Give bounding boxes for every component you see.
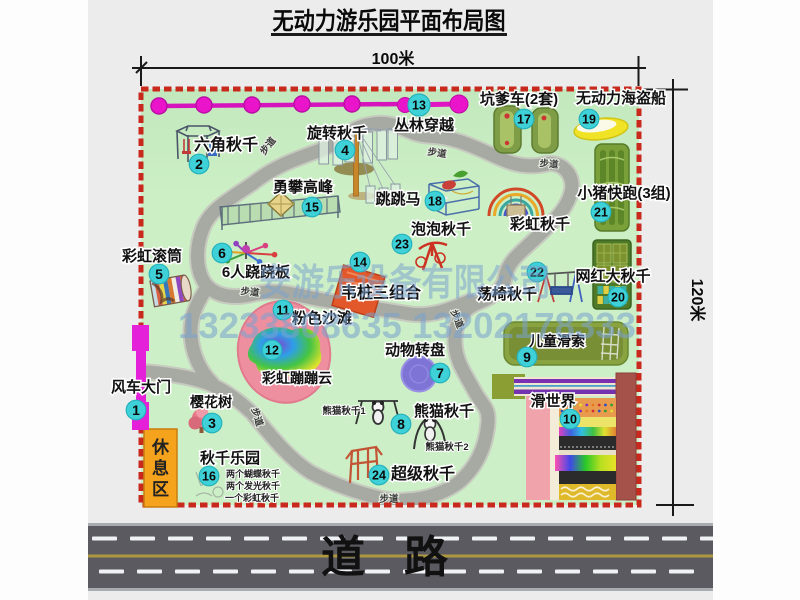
svg-text:10: 10 — [563, 413, 577, 427]
svg-text:24: 24 — [372, 469, 386, 483]
svg-text:坑爹车(2套): 坑爹车(2套) — [480, 90, 558, 108]
svg-text:5: 5 — [155, 266, 163, 282]
svg-text:9: 9 — [523, 349, 531, 365]
svg-text:无动力海盗船: 无动力海盗船 — [575, 89, 666, 107]
svg-text:无动力游乐园平面布局图: 无动力游乐园平面布局图 — [273, 7, 506, 35]
svg-text:100米: 100米 — [372, 49, 416, 68]
svg-text:网红大秋千: 网红大秋千 — [575, 267, 650, 285]
svg-text:樱花树: 樱花树 — [190, 394, 232, 410]
svg-text:熊猫秋千: 熊猫秋千 — [414, 402, 474, 420]
svg-text:两个蝴蝶秋千: 两个蝴蝶秋千 — [226, 468, 280, 479]
svg-text:息: 息 — [152, 458, 169, 478]
svg-text:120米: 120米 — [688, 279, 707, 323]
svg-text:21: 21 — [594, 206, 608, 220]
svg-text:彩虹蹦蹦云: 彩虹蹦蹦云 — [261, 370, 332, 386]
svg-text:4: 4 — [341, 142, 349, 158]
svg-text:18: 18 — [428, 195, 442, 209]
svg-text:步道: 步道 — [539, 157, 559, 171]
svg-text:丛林穿越: 丛林穿越 — [394, 116, 455, 134]
svg-text:20: 20 — [611, 291, 625, 305]
svg-text:步道: 步道 — [240, 285, 261, 299]
svg-text:23: 23 — [395, 238, 409, 252]
svg-text:1: 1 — [132, 402, 140, 418]
svg-text:六角秋千: 六角秋千 — [194, 135, 258, 154]
svg-text:13: 13 — [412, 99, 426, 113]
svg-text:泡泡秋千: 泡泡秋千 — [411, 220, 471, 238]
svg-text:8: 8 — [397, 416, 405, 432]
svg-text:休: 休 — [151, 437, 170, 457]
svg-text:6: 6 — [218, 245, 226, 261]
svg-text:一个彩虹秋千: 一个彩虹秋千 — [225, 492, 279, 503]
svg-text:2: 2 — [195, 156, 203, 172]
svg-text:熊猫秋千2: 熊猫秋千2 — [425, 441, 468, 453]
svg-text:熊猫秋千1: 熊猫秋千1 — [322, 405, 366, 417]
svg-text:安游乐设备有限公司: 安游乐设备有限公司 — [259, 262, 551, 303]
svg-text:跳跳马: 跳跳马 — [375, 190, 420, 208]
svg-text:区: 区 — [152, 480, 169, 499]
svg-text:超级秋千: 超级秋千 — [390, 464, 455, 483]
svg-text:路: 路 — [404, 533, 449, 582]
svg-text:17: 17 — [517, 113, 531, 127]
svg-text:13233808635 13202178333: 13233808635 13202178333 — [178, 305, 636, 346]
svg-text:16: 16 — [202, 470, 216, 484]
svg-text:彩虹滚筒: 彩虹滚筒 — [121, 247, 182, 265]
svg-text:两个发光秋千: 两个发光秋千 — [226, 480, 280, 491]
svg-text:19: 19 — [582, 113, 596, 127]
svg-text:小猪快跑(3组): 小猪快跑(3组) — [577, 184, 670, 202]
svg-text:勇攀高峰: 勇攀高峰 — [273, 178, 334, 196]
svg-text:7: 7 — [436, 365, 444, 381]
svg-text:15: 15 — [305, 201, 319, 215]
svg-text:旋转秋千: 旋转秋千 — [306, 124, 367, 142]
svg-text:3: 3 — [208, 415, 216, 431]
svg-text:秋千乐园: 秋千乐园 — [200, 449, 260, 467]
svg-text:风车大门: 风车大门 — [111, 378, 171, 396]
svg-text:滑世界: 滑世界 — [530, 392, 575, 410]
svg-text:彩虹秋千: 彩虹秋千 — [509, 215, 570, 233]
svg-text:道: 道 — [321, 533, 365, 582]
